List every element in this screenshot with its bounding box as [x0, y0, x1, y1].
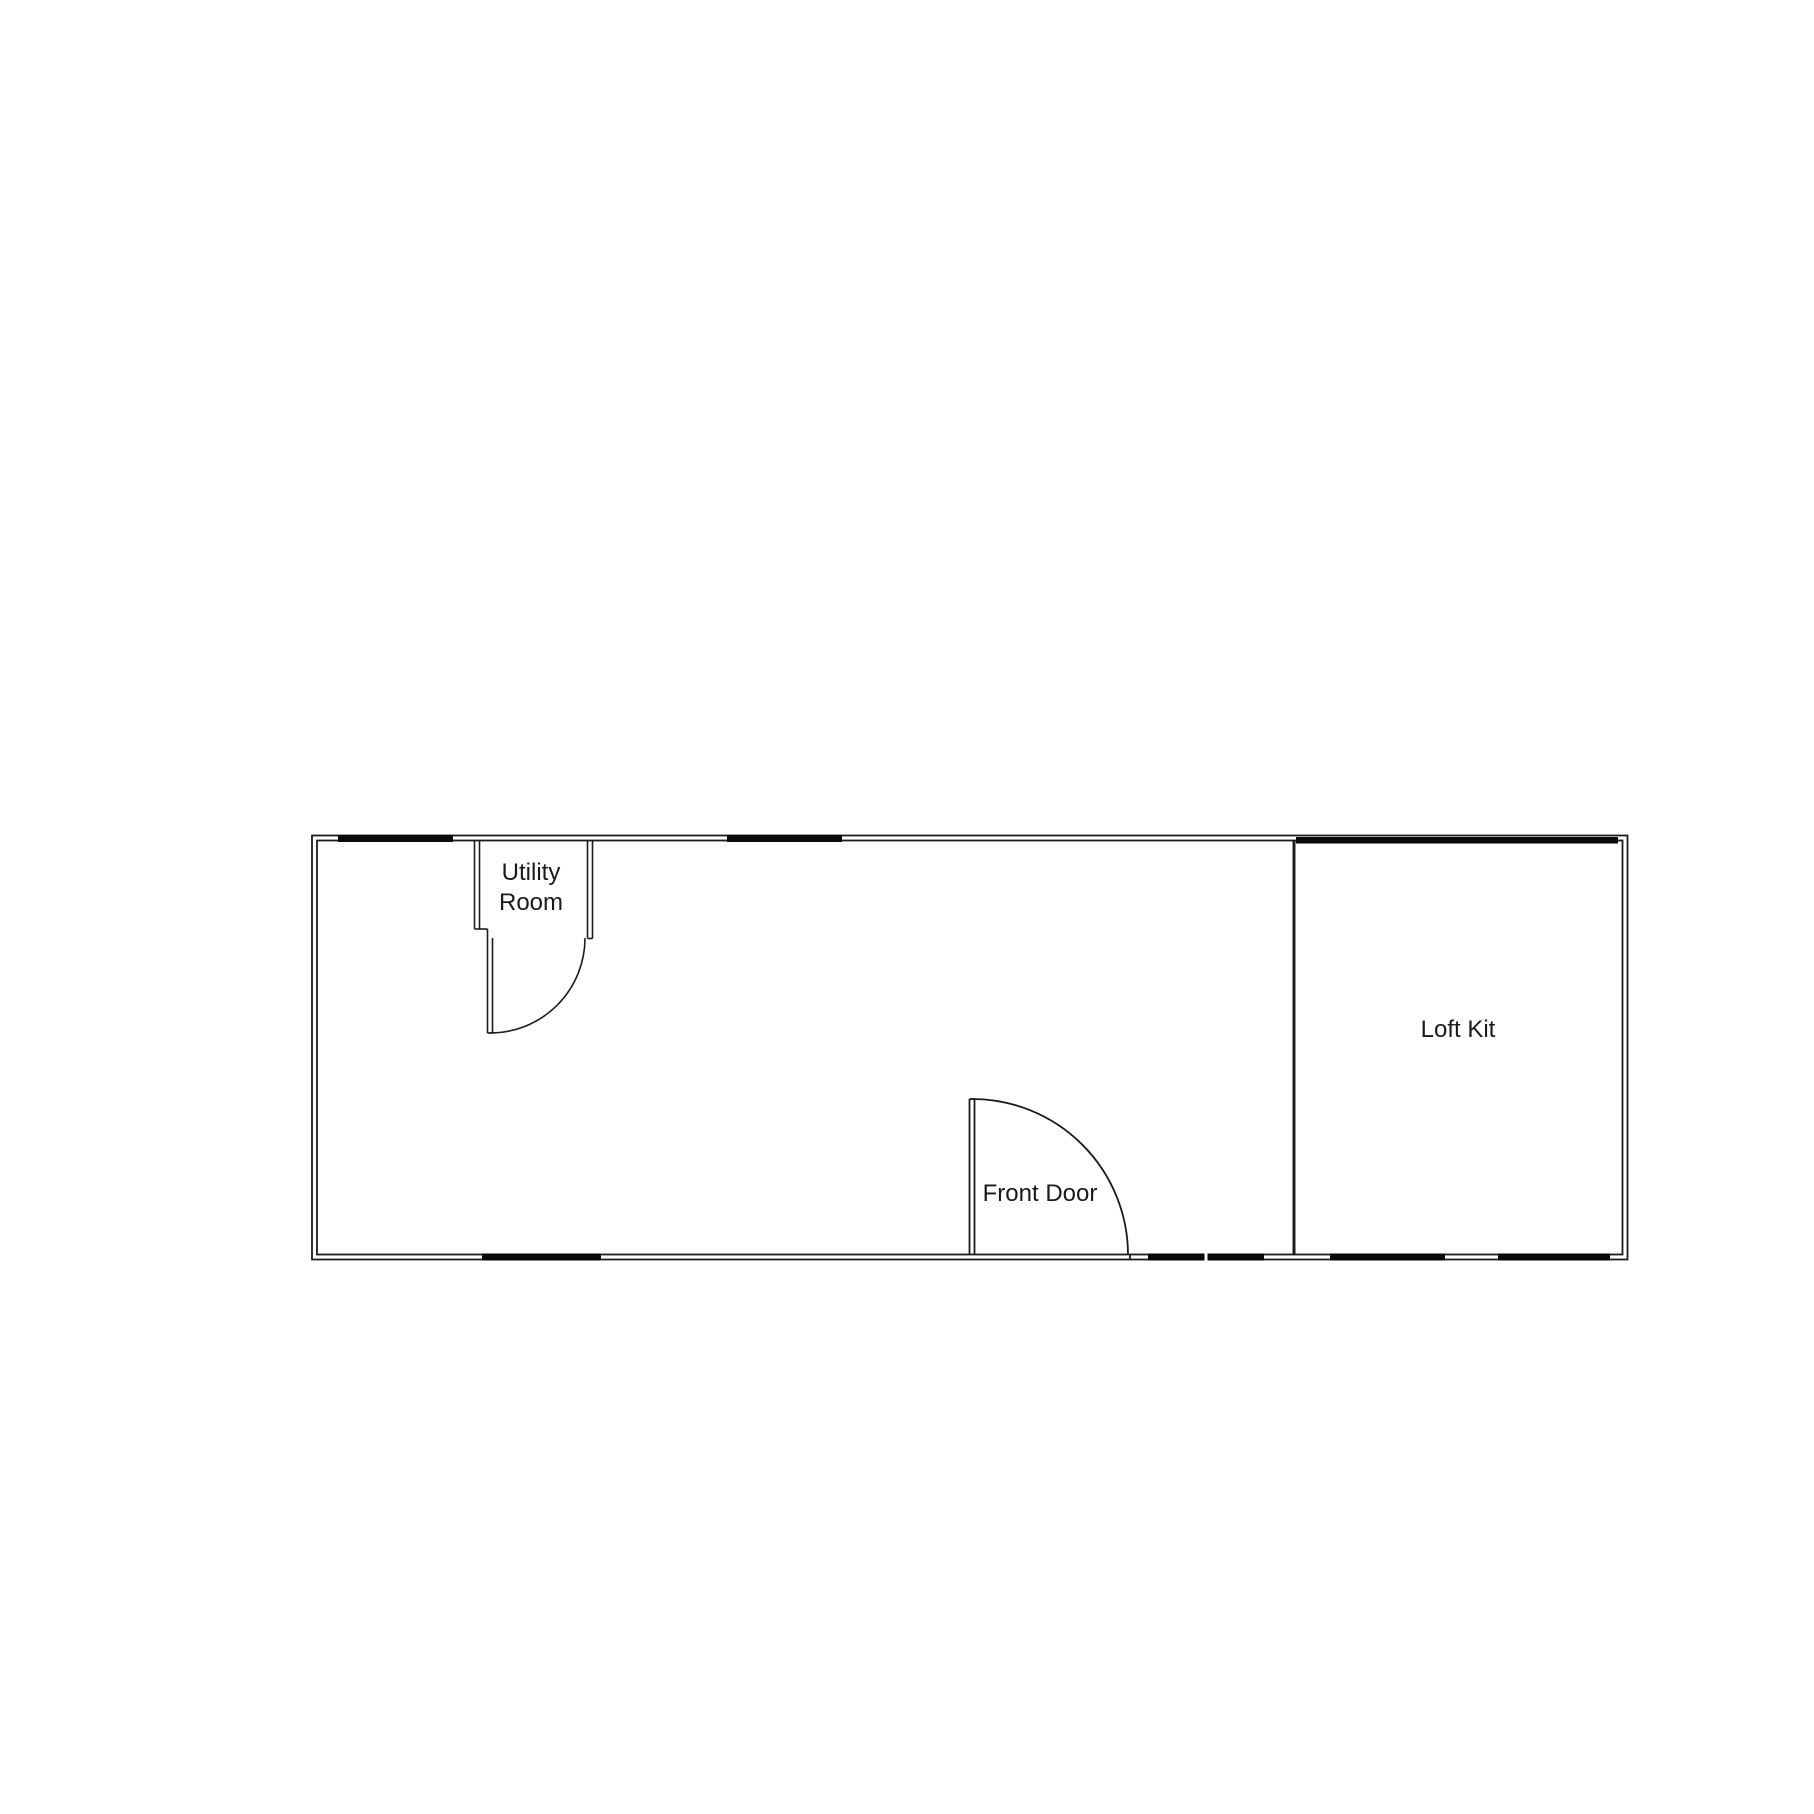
- window-top-middle: [727, 835, 842, 842]
- utility-room-door: [488, 938, 586, 1033]
- window-loft-bottom-right: [1498, 1254, 1610, 1261]
- labels: Utility Room Front Door Loft Kit: [499, 859, 1496, 1207]
- utility-room-label-line2: Room: [499, 889, 563, 916]
- window-loft-bottom-left: [1330, 1254, 1445, 1261]
- window-top-left: [338, 835, 453, 842]
- utility-room-label-line1: Utility: [502, 859, 561, 886]
- window-loft-top: [1296, 837, 1618, 844]
- loft-kit-label: Loft Kit: [1421, 1016, 1496, 1043]
- floor-plan-page: Utility Room Front Door Loft Kit: [0, 0, 1814, 1814]
- window-bottom-left: [482, 1254, 601, 1261]
- front-door-label: Front Door: [983, 1180, 1098, 1207]
- window-mullion-tick: [1205, 1253, 1208, 1261]
- floor-plan-drawing: Utility Room Front Door Loft Kit: [0, 0, 1814, 1814]
- front-door-swing-arc: [972, 1099, 1128, 1255]
- utility-door-swing-arc: [490, 938, 585, 1033]
